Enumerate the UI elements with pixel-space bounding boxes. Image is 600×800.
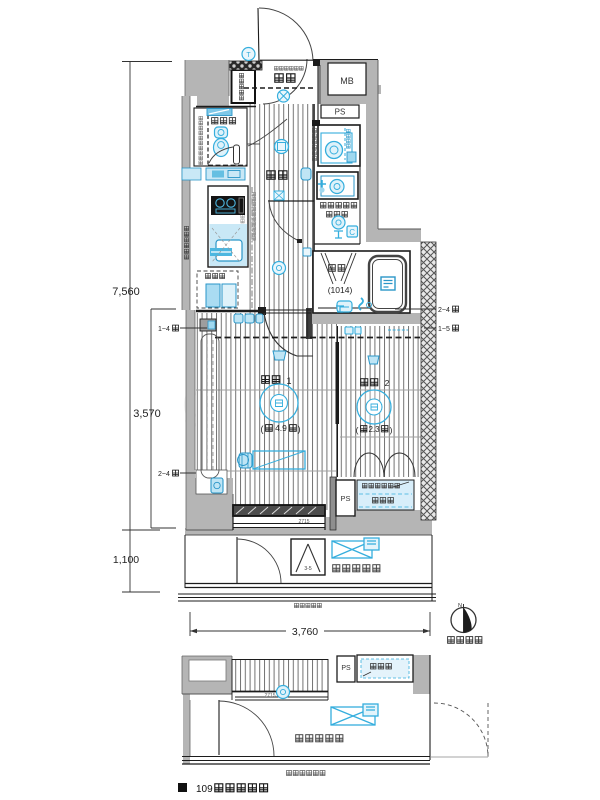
svg-text:2~4: 2~4 <box>158 471 170 478</box>
svg-text:1,100: 1,100 <box>113 554 139 566</box>
svg-text:3,570: 3,570 <box>133 408 161 420</box>
svg-text:1: 1 <box>286 376 291 386</box>
svg-text:PS: PS <box>335 108 346 117</box>
svg-text:T: T <box>246 52 251 59</box>
svg-text:2715: 2715 <box>264 693 275 699</box>
svg-text:109: 109 <box>196 784 213 795</box>
svg-text:): ) <box>390 425 393 435</box>
svg-text:7,560: 7,560 <box>112 286 140 298</box>
svg-text:N: N <box>458 603 462 609</box>
svg-text:2.3: 2.3 <box>368 425 380 434</box>
svg-text:(: ( <box>261 424 264 434</box>
svg-text:C: C <box>349 228 355 237</box>
svg-text:): ) <box>298 424 301 434</box>
svg-text:(1014): (1014) <box>328 285 353 295</box>
svg-text:PS: PS <box>341 665 351 672</box>
svg-text:(: ( <box>356 425 359 435</box>
svg-text:2715: 2715 <box>298 519 309 525</box>
svg-text:1~4: 1~4 <box>158 326 170 333</box>
svg-text:PS: PS <box>340 494 350 503</box>
svg-text:3,760: 3,760 <box>292 626 318 638</box>
svg-text:4.9: 4.9 <box>275 423 287 433</box>
svg-text:1~5: 1~5 <box>438 326 450 333</box>
svg-text:MB: MB <box>340 76 354 86</box>
svg-text:2~4: 2~4 <box>438 307 450 314</box>
svg-text:2: 2 <box>385 378 390 388</box>
svg-text:3-5: 3-5 <box>304 566 311 572</box>
